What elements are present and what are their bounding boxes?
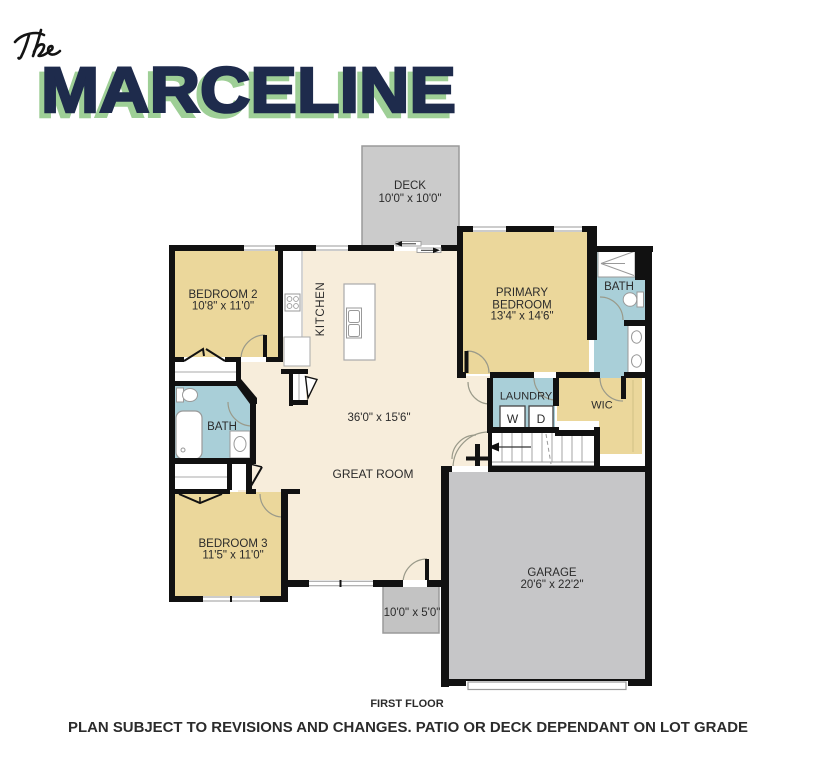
svg-text:GARAGE: GARAGE	[527, 567, 577, 579]
svg-text:BATH: BATH	[604, 281, 634, 293]
svg-text:36'0" x 15'6": 36'0" x 15'6"	[347, 412, 410, 424]
svg-text:D: D	[537, 412, 546, 426]
svg-text:10'0" x 10'0": 10'0" x 10'0"	[378, 193, 441, 205]
svg-text:11'5" x 11'0": 11'5" x 11'0"	[202, 550, 263, 562]
svg-text:BEDROOM 3: BEDROOM 3	[198, 538, 267, 550]
svg-text:FIRST FLOOR: FIRST FLOOR	[370, 698, 443, 710]
svg-text:13'4" x 14'6": 13'4" x 14'6"	[490, 311, 553, 323]
svg-text:WIC: WIC	[591, 400, 612, 412]
svg-text:W: W	[507, 412, 519, 426]
svg-text:BEDROOM 2: BEDROOM 2	[188, 289, 257, 301]
svg-text:20'6" x 22'2": 20'6" x 22'2"	[520, 579, 583, 591]
svg-text:KITCHEN: KITCHEN	[315, 282, 327, 337]
svg-text:MARCELINE: MARCELINE	[41, 54, 456, 126]
svg-text:LAUNDRY: LAUNDRY	[500, 391, 553, 403]
svg-text:10'0" x 5'0": 10'0" x 5'0"	[384, 607, 441, 619]
svg-text:PLAN SUBJECT TO REVISIONS AND: PLAN SUBJECT TO REVISIONS AND CHANGES. P…	[68, 720, 748, 736]
svg-text:PRIMARY: PRIMARY	[496, 287, 549, 299]
svg-text:10'8" x 11'0": 10'8" x 11'0"	[192, 301, 254, 313]
svg-text:GREAT ROOM: GREAT ROOM	[333, 467, 414, 481]
svg-text:BATH: BATH	[207, 421, 237, 433]
svg-text:DECK: DECK	[394, 180, 426, 192]
